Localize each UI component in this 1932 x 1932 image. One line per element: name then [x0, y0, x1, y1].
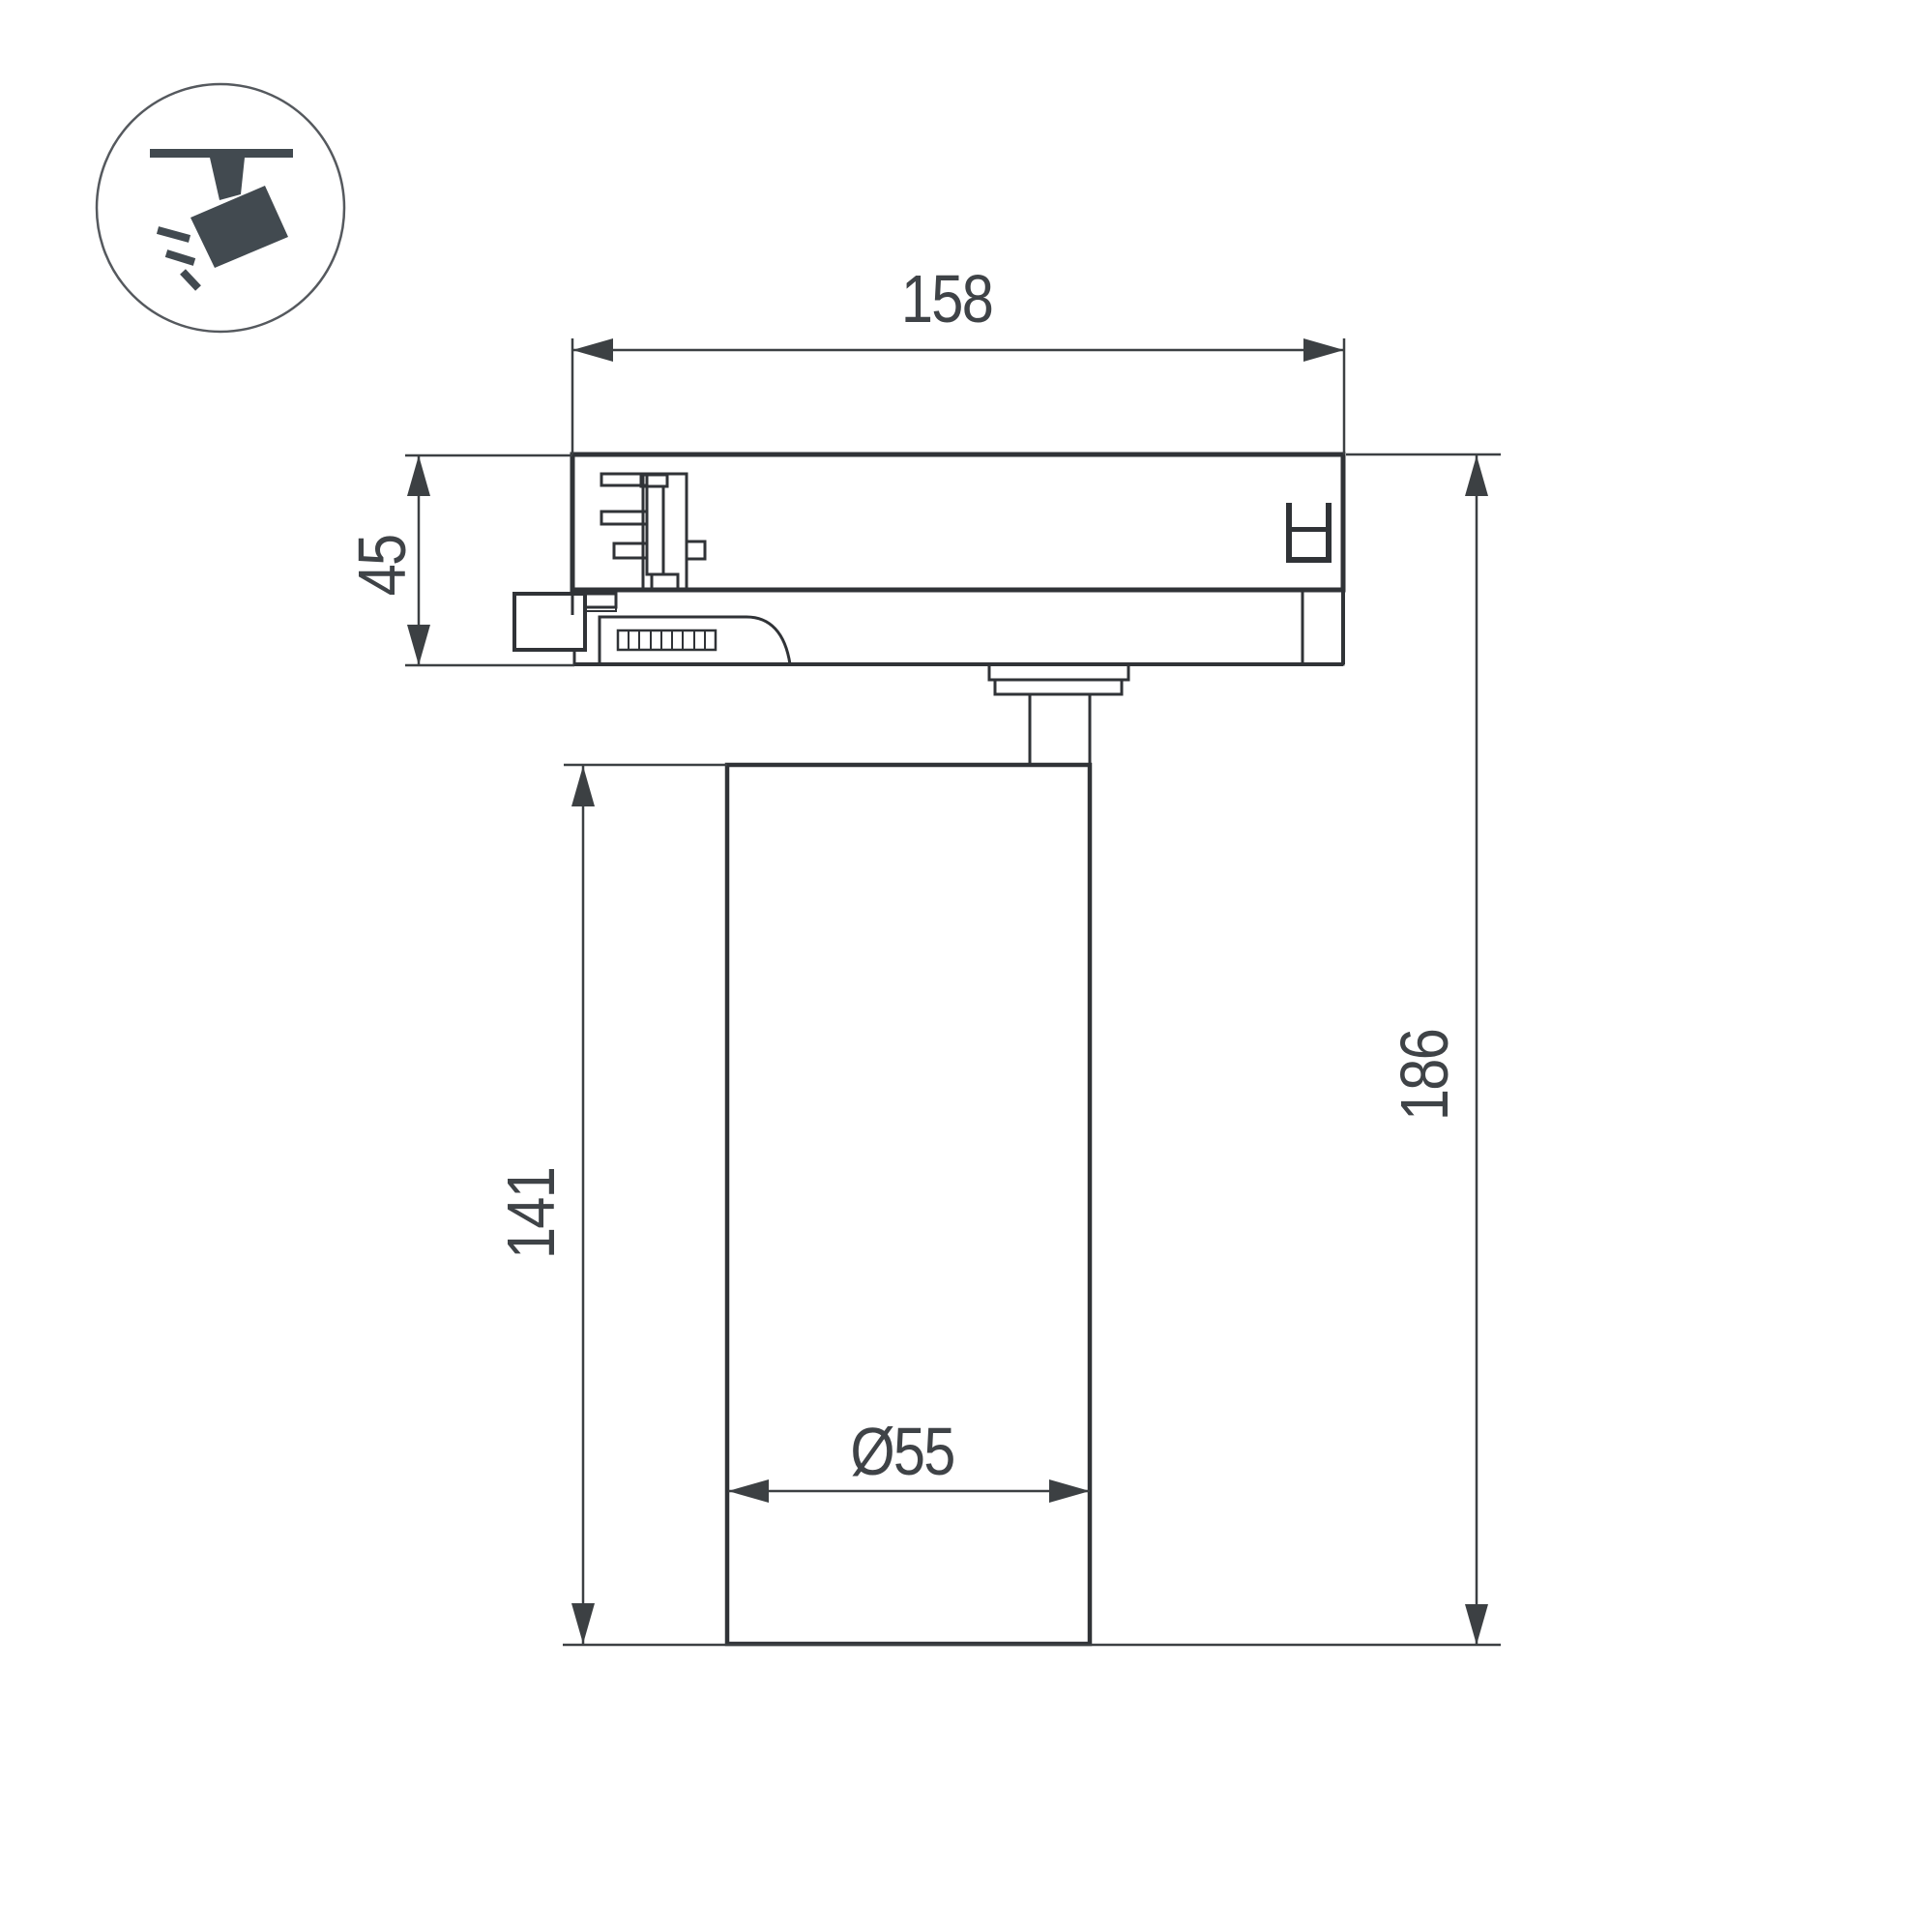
adapter-corner-block — [1303, 590, 1343, 664]
clip-left-wall — [1286, 503, 1292, 563]
dim-label-body-diameter: Ø55 — [850, 1413, 953, 1490]
adapter-main-box — [572, 454, 1343, 590]
latch-box — [514, 594, 585, 650]
arrowhead-left — [572, 338, 613, 362]
arrowhead-down — [1465, 1604, 1488, 1645]
dimension-141 — [564, 765, 727, 1644]
arrowhead-down — [571, 1603, 595, 1644]
swivel-stem — [1030, 694, 1090, 765]
arrowhead-up — [1465, 455, 1488, 496]
arrowhead-up — [407, 455, 430, 496]
dial-ribs-frame — [618, 630, 716, 650]
clip-crossbar — [1292, 527, 1326, 532]
latch-step-box — [585, 594, 616, 607]
adapter-contact-assembly — [601, 474, 705, 590]
dim-label-total-height: 186 — [1386, 1030, 1463, 1121]
dim-label-body-height: 141 — [492, 1168, 570, 1259]
lamp-body — [727, 765, 1090, 1644]
contact-stem — [647, 486, 663, 574]
track-spotlight-icon — [97, 84, 344, 332]
clip-right-wall — [1326, 503, 1332, 563]
dim-label-adapter-height: 45 — [343, 536, 421, 597]
icon-track-bar — [150, 149, 293, 158]
swivel-plate-upper — [989, 664, 1128, 680]
arrowhead-right — [1049, 1479, 1090, 1503]
arrowhead-left — [728, 1479, 769, 1503]
adapter-clip — [1286, 503, 1332, 563]
clip-bottom-wall — [1286, 557, 1332, 563]
dimensional-drawing-page: 158 45 141 186 Ø55 — [0, 0, 1932, 1932]
dimension-158 — [572, 338, 1344, 454]
swivel-joint — [989, 664, 1128, 765]
swivel-plate-lower — [995, 680, 1122, 694]
dimension-45 — [405, 455, 574, 665]
arrowhead-right — [1303, 338, 1344, 362]
arrowhead-up — [571, 766, 595, 806]
dimension-186 — [563, 454, 1501, 1645]
latch-step-lines — [585, 607, 616, 611]
arrowhead-down — [407, 625, 430, 665]
adapter-dial-plate — [600, 617, 790, 664]
contact-side-tab — [687, 542, 705, 559]
contact-prong-middle — [601, 512, 647, 524]
dial-ribs — [629, 630, 705, 650]
dim-label-adapter-width: 158 — [901, 260, 992, 337]
